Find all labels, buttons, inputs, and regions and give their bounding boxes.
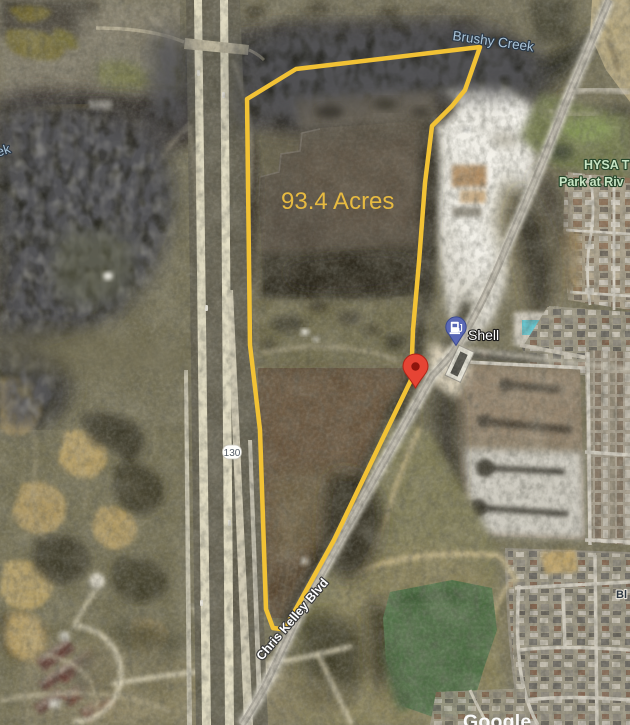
svg-text:Park at Riv: Park at Riv	[559, 175, 624, 189]
svg-text:Bl: Bl	[616, 589, 627, 601]
svg-text:Google: Google	[463, 711, 531, 725]
svg-text:93.4 Acres: 93.4 Acres	[281, 188, 394, 215]
svg-text:Shell: Shell	[468, 327, 499, 343]
svg-text:HYSA T: HYSA T	[584, 158, 630, 172]
svg-text:130: 130	[224, 448, 241, 459]
